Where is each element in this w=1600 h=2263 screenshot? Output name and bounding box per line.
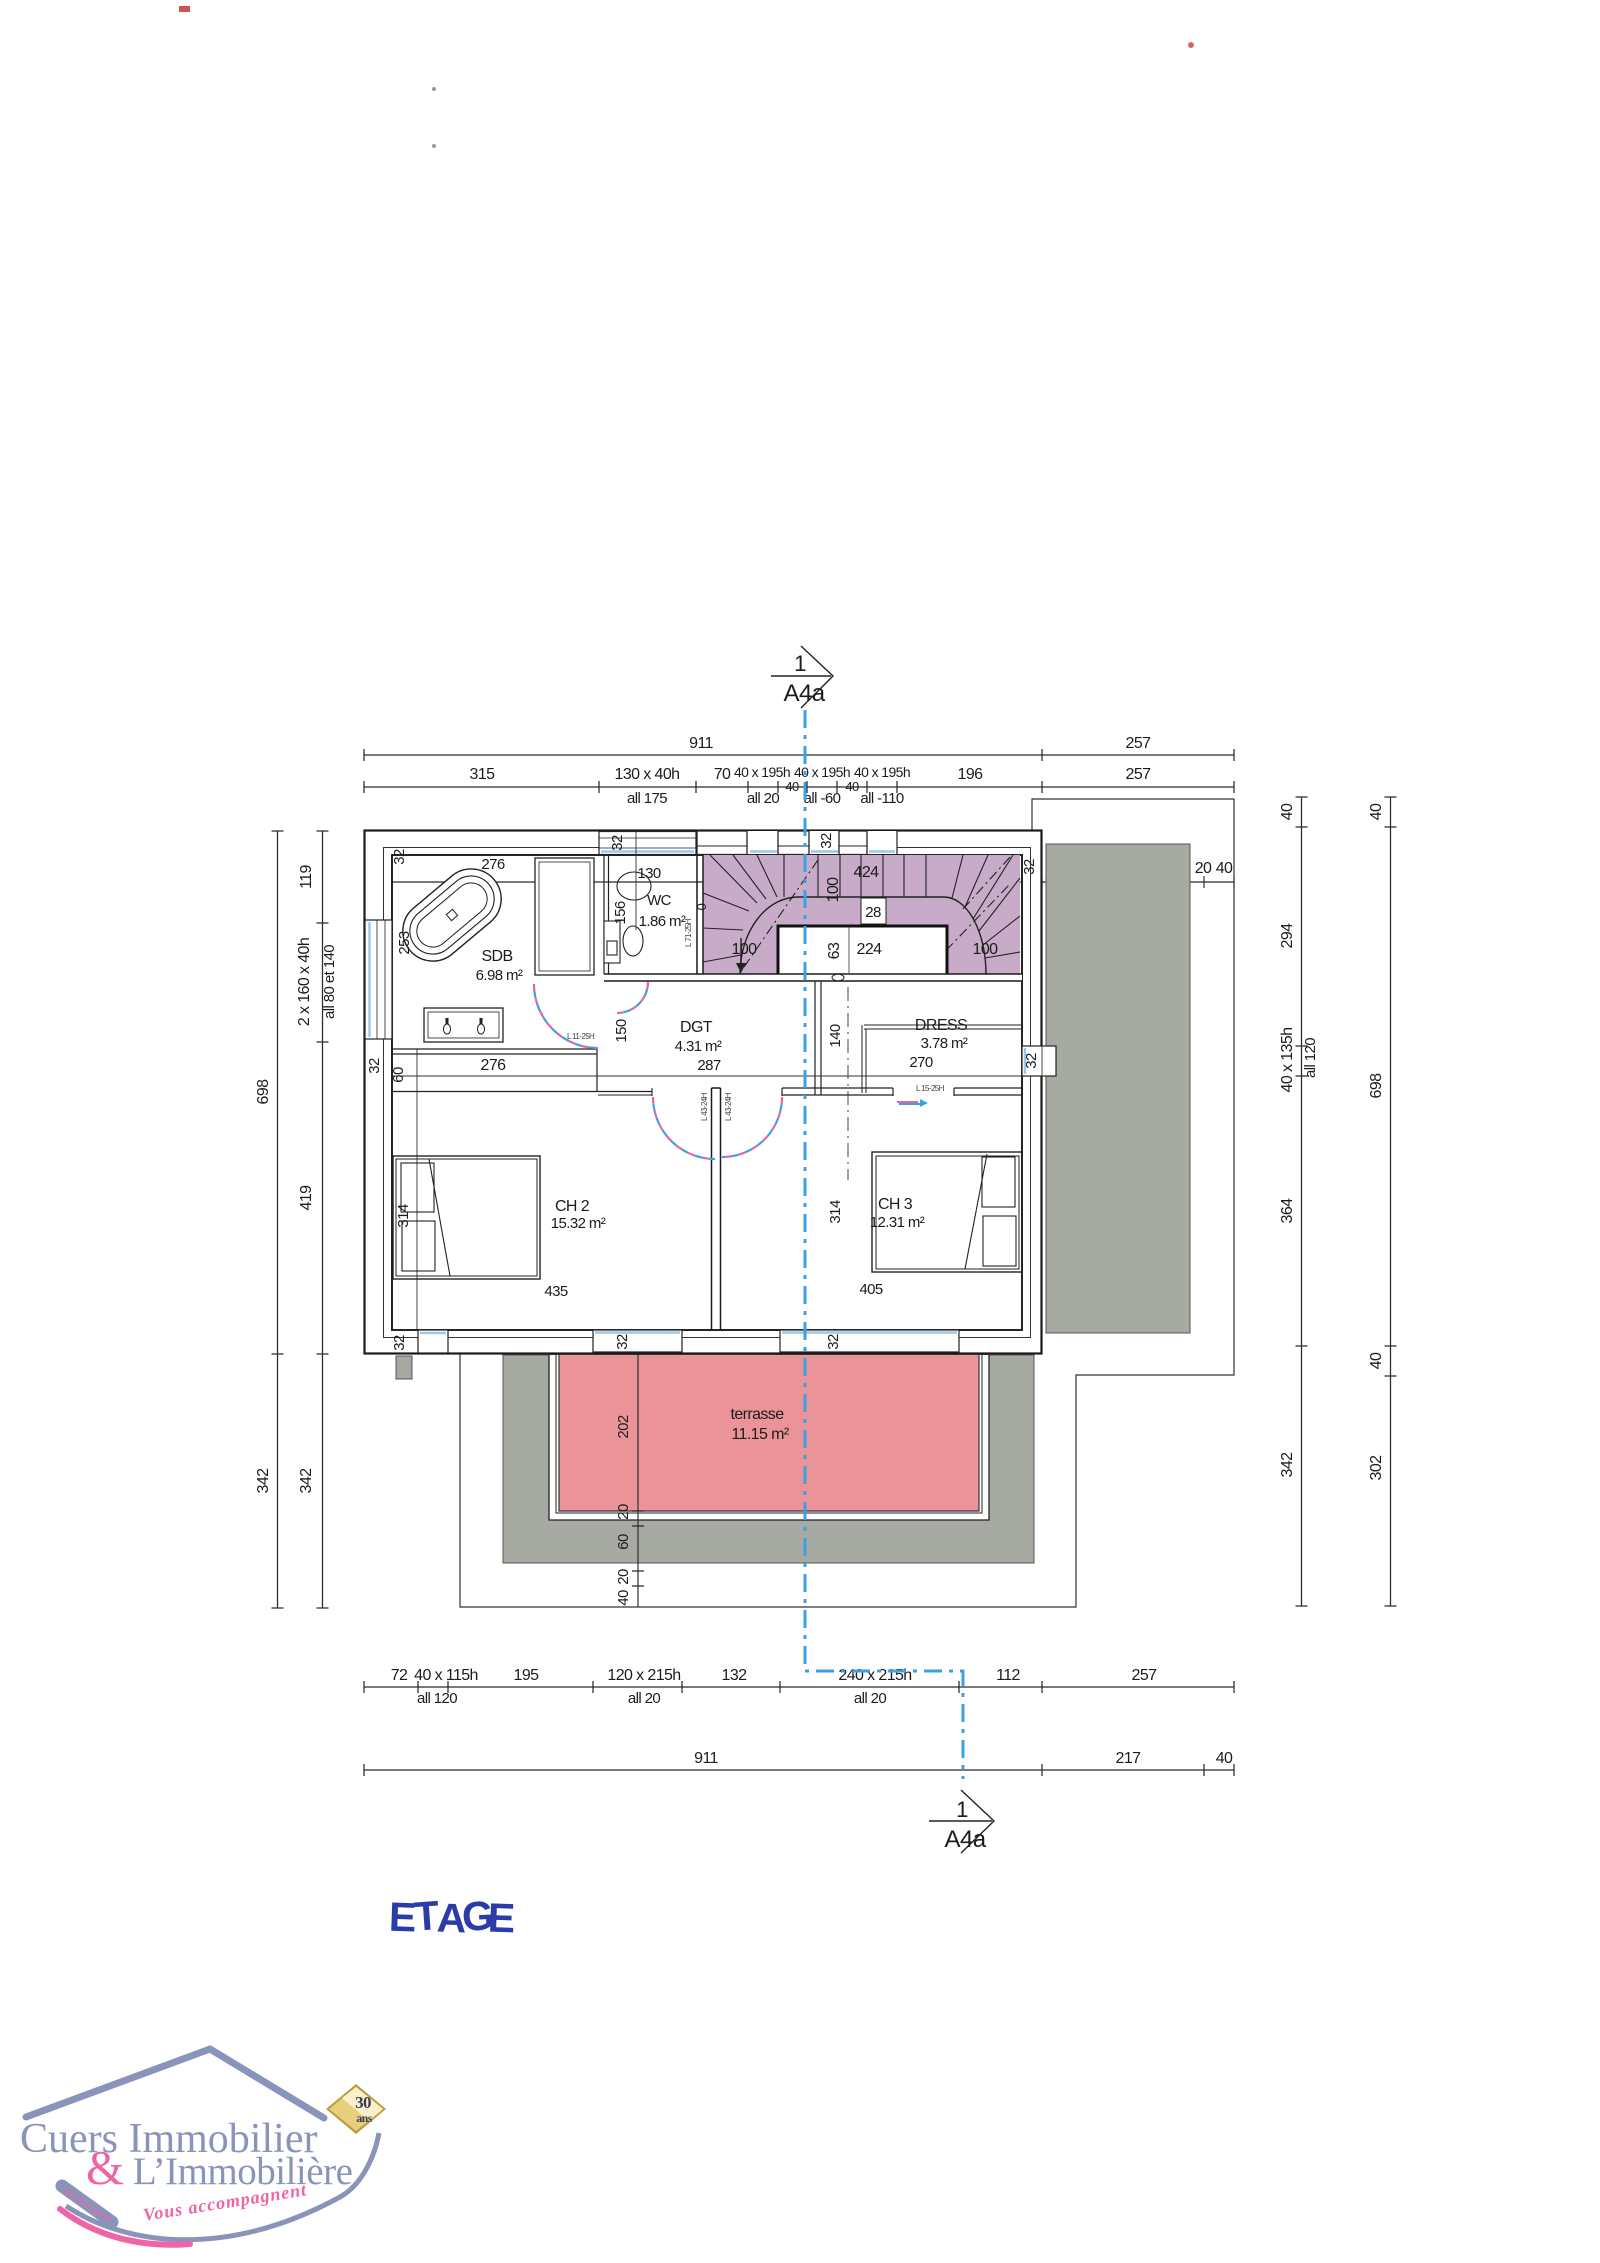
svg-text:698: 698 xyxy=(255,1079,272,1105)
svg-text:130 x 40h: 130 x 40h xyxy=(615,766,680,783)
svg-text:342: 342 xyxy=(255,1468,272,1494)
svg-text:100: 100 xyxy=(825,877,842,903)
svg-text:all -60: all -60 xyxy=(804,790,841,807)
svg-text:32: 32 xyxy=(366,1058,383,1074)
svg-text:E: E xyxy=(487,1894,515,1941)
svg-text:132: 132 xyxy=(722,1667,748,1684)
svg-text:63: 63 xyxy=(826,942,843,959)
svg-text:911: 911 xyxy=(689,735,713,752)
svg-text:40: 40 xyxy=(845,779,859,794)
svg-text:257: 257 xyxy=(1132,1667,1158,1684)
svg-text:119: 119 xyxy=(298,864,315,888)
svg-text:A4a: A4a xyxy=(945,1826,987,1853)
svg-text:202: 202 xyxy=(615,1415,632,1438)
svg-text:L 71-25H: L 71-25H xyxy=(684,918,693,947)
svg-text:40 x 135h: 40 x 135h xyxy=(1279,1028,1296,1093)
svg-text:100: 100 xyxy=(973,941,999,958)
svg-text:L 43-24H: L 43-24H xyxy=(700,1092,709,1121)
svg-text:1: 1 xyxy=(794,651,806,676)
svg-text:257: 257 xyxy=(1126,766,1152,783)
svg-text:315: 315 xyxy=(470,766,496,783)
svg-text:424: 424 xyxy=(854,864,880,881)
svg-text:40: 40 xyxy=(1279,803,1296,820)
svg-text:L 43-24H: L 43-24H xyxy=(724,1092,733,1121)
svg-text:32: 32 xyxy=(1021,859,1038,875)
svg-text:150: 150 xyxy=(613,1019,630,1042)
svg-text:all 120: all 120 xyxy=(417,1690,457,1707)
svg-text:195: 195 xyxy=(514,1667,540,1684)
svg-text:270: 270 xyxy=(909,1054,932,1071)
svg-text:all 20: all 20 xyxy=(628,1690,661,1707)
svg-text:911: 911 xyxy=(694,1750,718,1767)
svg-text:287: 287 xyxy=(697,1057,720,1074)
svg-text:32: 32 xyxy=(614,1334,631,1350)
svg-text:2 x 160 x 40h: 2 x 160 x 40h xyxy=(296,938,313,1026)
svg-text:140: 140 xyxy=(827,1024,844,1047)
svg-text:15.32 m²: 15.32 m² xyxy=(551,1215,606,1232)
svg-text:100: 100 xyxy=(732,941,758,958)
svg-text:20: 20 xyxy=(615,1504,632,1520)
svg-text:32: 32 xyxy=(391,1335,408,1351)
svg-text:112: 112 xyxy=(996,1667,1020,1684)
svg-text:40: 40 xyxy=(1216,860,1233,877)
svg-text:all 80 et 140: all 80 et 140 xyxy=(321,945,338,1019)
svg-text:all 20: all 20 xyxy=(747,790,780,807)
svg-text:20: 20 xyxy=(1195,860,1212,877)
svg-text:30: 30 xyxy=(355,2093,371,2112)
svg-text:40: 40 xyxy=(785,779,799,794)
svg-text:40: 40 xyxy=(1368,1352,1385,1369)
svg-text:40 x 195h: 40 x 195h xyxy=(854,764,910,780)
svg-text:276: 276 xyxy=(481,856,504,873)
svg-text:11.15 m²: 11.15 m² xyxy=(731,1426,789,1443)
svg-text:20: 20 xyxy=(615,1569,632,1585)
svg-text:32: 32 xyxy=(609,835,626,851)
svg-text:698: 698 xyxy=(1368,1073,1385,1099)
svg-text:120 x 215h: 120 x 215h xyxy=(607,1667,680,1684)
svg-text:60: 60 xyxy=(615,1534,632,1550)
svg-text:70: 70 xyxy=(714,766,731,783)
svg-text:terrasse: terrasse xyxy=(731,1406,785,1423)
svg-text:342: 342 xyxy=(298,1468,315,1494)
svg-text:1: 1 xyxy=(956,1797,968,1822)
svg-text:32: 32 xyxy=(1023,1053,1040,1069)
svg-text:40: 40 xyxy=(1368,803,1385,820)
svg-text:32: 32 xyxy=(825,1334,842,1350)
svg-text:72: 72 xyxy=(391,1667,408,1684)
svg-text:253: 253 xyxy=(396,931,413,954)
svg-text:32: 32 xyxy=(818,833,835,849)
svg-text:40 x 195h: 40 x 195h xyxy=(794,764,850,780)
svg-text:1.86 m²: 1.86 m² xyxy=(639,913,686,930)
svg-text:314: 314 xyxy=(395,1204,412,1227)
svg-text:130: 130 xyxy=(637,865,660,882)
svg-text:all 175: all 175 xyxy=(627,790,667,807)
svg-text:ans: ans xyxy=(356,2111,372,2125)
svg-text:435: 435 xyxy=(544,1283,567,1300)
svg-text:all 20: all 20 xyxy=(854,1690,887,1707)
svg-text:217: 217 xyxy=(1116,1750,1142,1767)
svg-text:4.31 m²: 4.31 m² xyxy=(675,1038,722,1055)
svg-text:294: 294 xyxy=(1279,923,1296,949)
svg-text:WC: WC xyxy=(647,892,672,909)
svg-text:CH 3: CH 3 xyxy=(878,1196,913,1213)
svg-text:DGT: DGT xyxy=(680,1019,713,1036)
svg-text:L 11-25H: L 11-25H xyxy=(567,1032,595,1041)
svg-text:40 x 115h: 40 x 115h xyxy=(414,1667,478,1684)
svg-text:342: 342 xyxy=(1279,1452,1296,1478)
svg-text:all -110: all -110 xyxy=(860,790,904,807)
svg-text:364: 364 xyxy=(1279,1198,1296,1224)
svg-text:DRESS: DRESS xyxy=(915,1017,967,1034)
svg-text:196: 196 xyxy=(958,766,984,783)
svg-text:257: 257 xyxy=(1126,735,1152,752)
svg-text:3.78 m²: 3.78 m² xyxy=(921,1035,968,1052)
svg-text:156: 156 xyxy=(612,901,629,924)
svg-text:60: 60 xyxy=(390,1067,407,1083)
svg-text:40: 40 xyxy=(615,1590,632,1606)
svg-text:276: 276 xyxy=(481,1057,507,1074)
svg-text:224: 224 xyxy=(857,941,883,958)
svg-text:12.31 m²: 12.31 m² xyxy=(870,1214,925,1231)
svg-text:CH 2: CH 2 xyxy=(555,1198,590,1215)
svg-text:28: 28 xyxy=(865,904,881,921)
svg-text:40: 40 xyxy=(1216,1750,1233,1767)
svg-text:SDB: SDB xyxy=(481,948,512,965)
svg-text:all 120: all 120 xyxy=(1302,1038,1319,1078)
svg-text:419: 419 xyxy=(298,1185,315,1211)
svg-text:405: 405 xyxy=(859,1281,882,1298)
svg-text:A4a: A4a xyxy=(784,680,826,707)
svg-text:40 x 195h: 40 x 195h xyxy=(734,764,790,780)
svg-text:6.98 m²: 6.98 m² xyxy=(476,967,523,984)
svg-text:32: 32 xyxy=(391,849,408,865)
svg-text:314: 314 xyxy=(827,1200,844,1223)
svg-text:L 15-25H: L 15-25H xyxy=(916,1084,945,1093)
svg-text:302: 302 xyxy=(1368,1455,1385,1481)
